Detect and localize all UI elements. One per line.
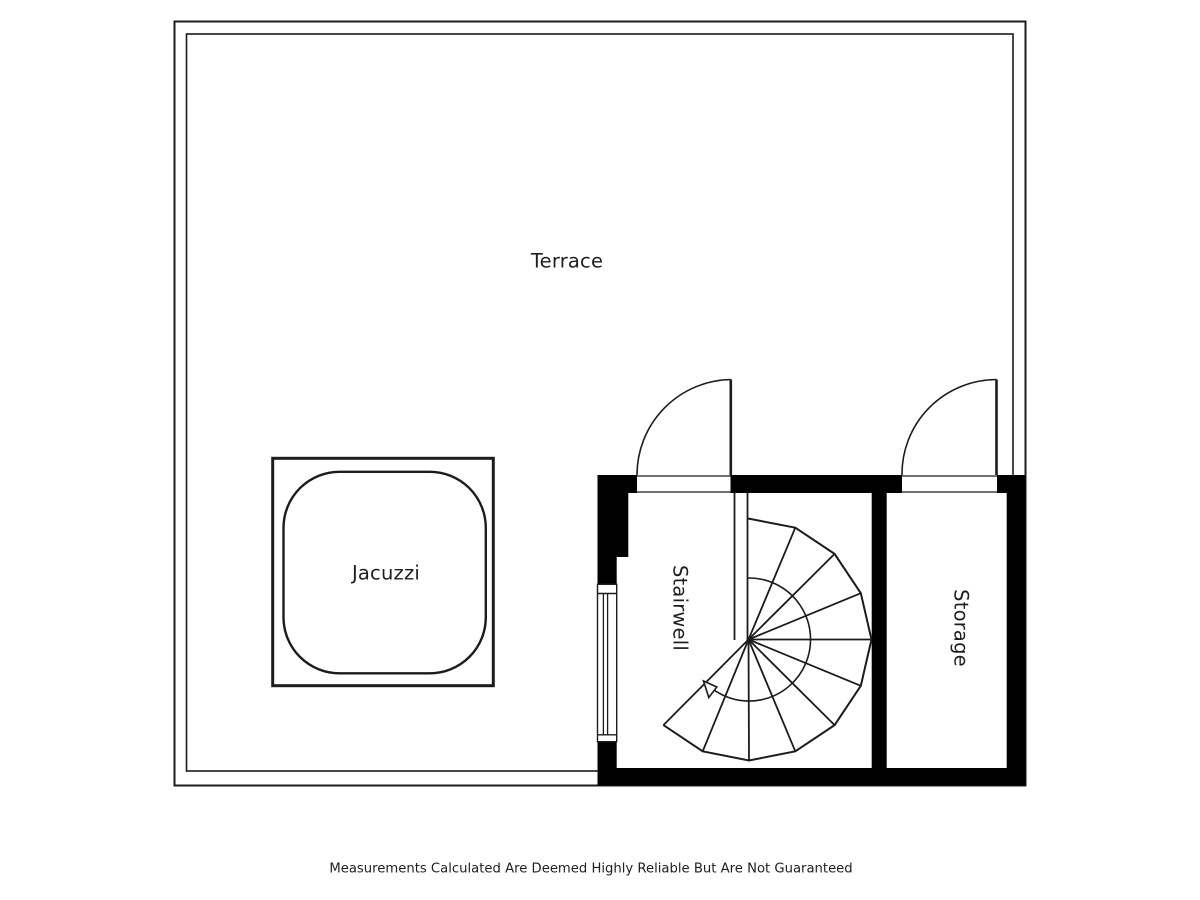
room-label-terrace: Terrace	[531, 250, 603, 273]
stair-tread-line	[749, 554, 835, 640]
wall-segment-top-left	[598, 475, 638, 493]
stair-direction-arrow-icon	[704, 681, 717, 698]
room-label-storage: Storage	[950, 589, 973, 667]
room-label-stairwell: Stairwell	[669, 565, 692, 651]
wall-segment-right	[1007, 493, 1026, 768]
stairwell-window	[598, 584, 617, 741]
wall-segment-divider	[872, 493, 887, 768]
storage-door-arc	[902, 380, 997, 476]
wall-segment-left-upper	[598, 493, 629, 557]
wall-segment-bottom	[598, 768, 1026, 786]
stairwell-door	[637, 380, 731, 493]
storage-door	[902, 380, 997, 493]
stairwell-door-arc	[637, 380, 731, 476]
stair-tread-line	[749, 640, 750, 761]
disclaimer-text: Measurements Calculated Are Deemed Highl…	[329, 862, 852, 877]
wall-segment-left-below-window	[598, 742, 617, 768]
floorplan-drawing	[0, 0, 1200, 900]
wall-segment-left-above-window	[598, 557, 617, 584]
wall-segment-top-right	[997, 475, 1026, 493]
stair-tread-line	[749, 640, 835, 726]
floorplan-canvas: Terrace Jacuzzi Stairwell Storage Measur…	[0, 0, 1200, 900]
room-label-jacuzzi: Jacuzzi	[352, 561, 420, 584]
spiral-staircase	[663, 493, 871, 761]
wall-segment-top-middle	[731, 475, 903, 493]
